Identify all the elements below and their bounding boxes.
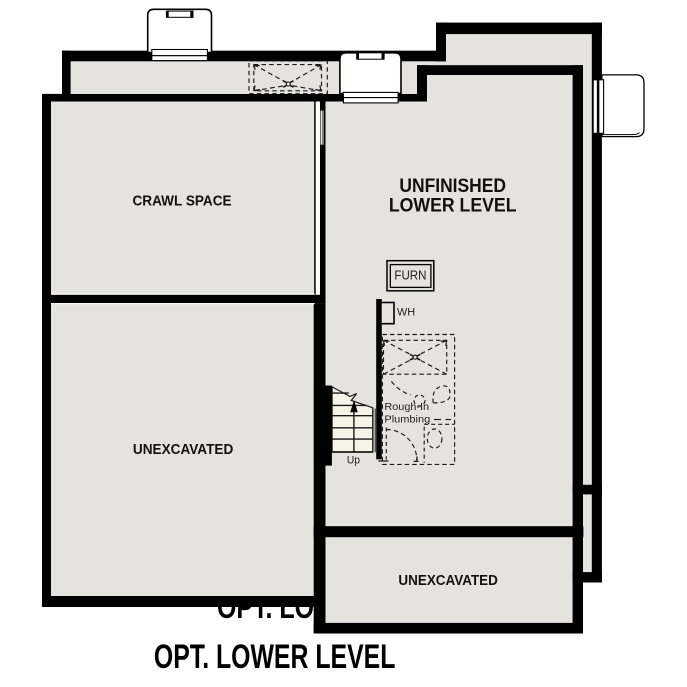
svg-text:CRAWL SPACE: CRAWL SPACE — [133, 194, 232, 210]
svg-text:LOWER LEVEL: LOWER LEVEL — [389, 195, 517, 217]
svg-text:WH: WH — [397, 306, 415, 318]
svg-text:OPT. LOWER LEVEL: OPT. LOWER LEVEL — [154, 638, 396, 676]
svg-text:Rough-In: Rough-In — [384, 402, 429, 413]
svg-text:Plumbing: Plumbing — [384, 415, 430, 426]
svg-text:Up: Up — [347, 455, 360, 467]
svg-text:UNEXCAVATED: UNEXCAVATED — [398, 573, 498, 589]
svg-text:UNEXCAVATED: UNEXCAVATED — [133, 442, 233, 458]
svg-text:FURN: FURN — [394, 269, 426, 283]
